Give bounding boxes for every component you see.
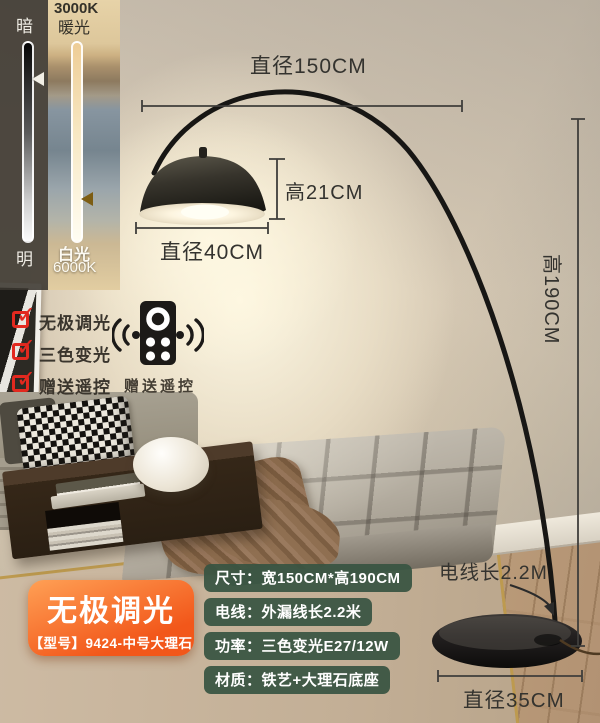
checkmark-icon: ✓ bbox=[16, 365, 36, 394]
color-temp-slider[interactable] bbox=[71, 41, 83, 243]
label-dark: 暗 bbox=[16, 12, 33, 37]
dim-label-cord-length: 电线长2.2M bbox=[439, 556, 548, 585]
checkbox-icon[interactable]: ✓ bbox=[12, 375, 29, 392]
remote-caption: 赠送遥控 bbox=[124, 375, 196, 396]
lamp-bulb-glow bbox=[181, 205, 229, 220]
remote-control-icon bbox=[112, 300, 204, 374]
badge-title: 无极调光 bbox=[28, 586, 194, 630]
label-bright: 明 bbox=[16, 245, 33, 270]
checkbox-icon[interactable]: ✓ bbox=[12, 311, 29, 328]
feature-label: 赠送遥控 bbox=[39, 373, 111, 398]
spec-table: 尺寸：宽150CM*高190CM 电线：外漏线长2.2米 功率：三色变光E27/… bbox=[204, 564, 412, 700]
label-6000k: 6000K bbox=[53, 259, 96, 276]
cord-arrowhead bbox=[544, 602, 554, 616]
checkmark-icon: ✓ bbox=[16, 301, 36, 330]
brightness-slider-handle[interactable] bbox=[32, 72, 44, 86]
shade-finial bbox=[199, 147, 207, 158]
dim-label-arc-width: 直径150CM bbox=[250, 50, 367, 80]
dim-label-shade-diameter: 直径40CM bbox=[160, 236, 264, 266]
label-warm-light: 暖光 bbox=[58, 14, 90, 38]
product-image: 直径150CM 高21CM 直径40CM 高190CM 电线长2.2M 直径35… bbox=[0, 0, 600, 723]
checkmark-icon: ✓ bbox=[16, 333, 36, 362]
feature-label: 三色变光 bbox=[39, 341, 111, 366]
model-badge: 无极调光 【型号】9424-中号大理石 bbox=[28, 580, 194, 656]
feature-item: ✓ 赠送遥控 bbox=[12, 370, 132, 402]
dim-label-base-diameter: 直径35CM bbox=[463, 683, 565, 713]
spec-row-cord: 电线：外漏线长2.2米 bbox=[204, 598, 372, 626]
spec-row-power: 功率：三色变光E27/12W bbox=[204, 632, 400, 660]
checkbox-icon[interactable]: ✓ bbox=[12, 343, 29, 360]
badge-model-number: 【型号】9424-中号大理石 bbox=[28, 632, 194, 652]
color-temp-slider-handle[interactable] bbox=[81, 192, 93, 206]
spec-row-size: 尺寸：宽150CM*高190CM bbox=[204, 564, 412, 592]
dim-label-shade-height: 高21CM bbox=[285, 176, 363, 205]
dim-label-lamp-height: 高190CM bbox=[539, 254, 568, 344]
spec-row-material: 材质：铁艺+大理石底座 bbox=[204, 666, 390, 694]
feature-label: 无极调光 bbox=[39, 309, 111, 334]
